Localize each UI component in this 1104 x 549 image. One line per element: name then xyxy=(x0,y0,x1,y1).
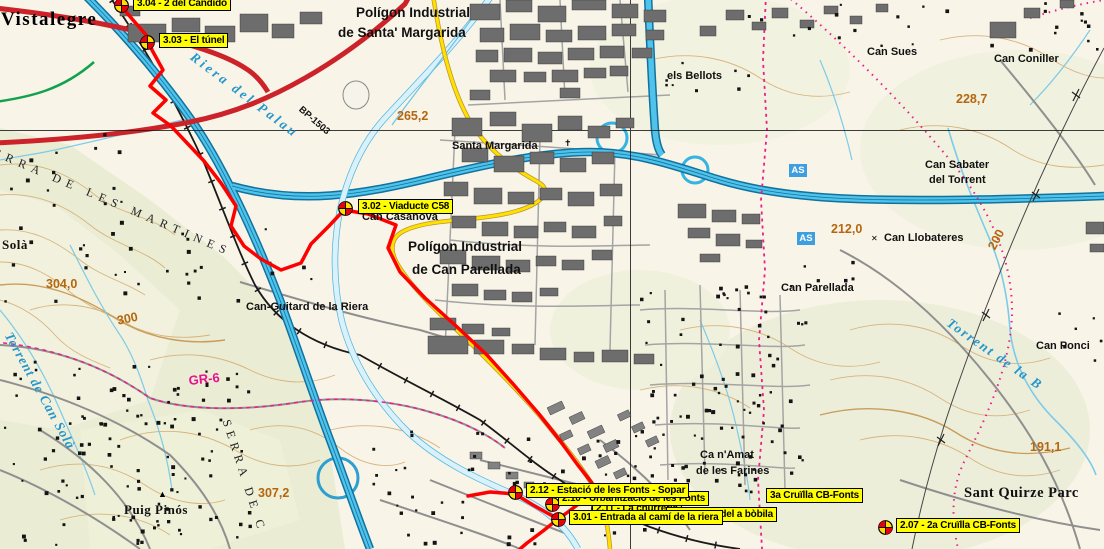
waypoint-icon[interactable] xyxy=(338,201,353,216)
waypoint-label[interactable]: 3a Cruïlla CB-Fonts xyxy=(766,488,863,503)
waypoint-icon[interactable] xyxy=(508,485,523,500)
waypoint-icon[interactable] xyxy=(551,512,566,527)
waypoints-layer: 2.11 - La churreria2.10 - Urbanització d… xyxy=(0,0,1104,549)
waypoint-label[interactable]: 3.03 - El túnel xyxy=(159,33,228,48)
waypoint-label[interactable]: 3.01 - Entrada al camí de la riera xyxy=(569,510,723,525)
map-viewport[interactable]: VistalegrePolígon Industrialde Santa' Ma… xyxy=(0,0,1104,549)
waypoint-label[interactable]: 3.04 - 2 del Candido xyxy=(133,0,231,11)
waypoint-label[interactable]: 3.02 - Viaducte C58 xyxy=(358,199,453,214)
waypoint-label[interactable]: 2.12 - Estació de les Fonts - Sopar xyxy=(526,483,689,498)
waypoint-label[interactable]: 2.07 - 2a Cruïlla CB-Fonts xyxy=(896,518,1020,533)
waypoint-icon[interactable] xyxy=(140,35,155,50)
waypoint-icon[interactable] xyxy=(878,520,893,535)
waypoint-icon[interactable] xyxy=(114,0,129,13)
